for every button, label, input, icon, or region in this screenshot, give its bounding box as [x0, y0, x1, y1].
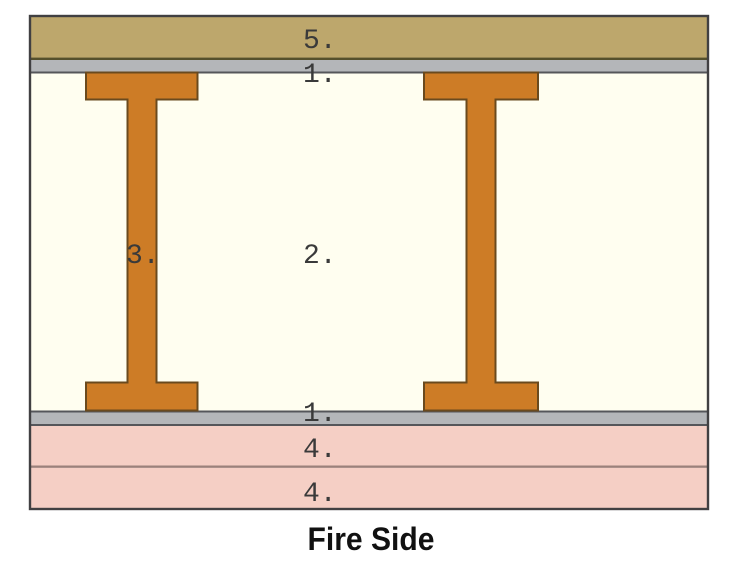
svg-text:4.: 4. [303, 479, 337, 510]
svg-text:2.: 2. [303, 241, 337, 272]
svg-text:3.: 3. [126, 241, 160, 272]
svg-text:Fire Side: Fire Side [308, 521, 435, 557]
svg-text:1.: 1. [303, 60, 337, 91]
svg-text:1.: 1. [303, 399, 337, 430]
svg-text:5.: 5. [303, 26, 337, 57]
svg-text:4.: 4. [303, 435, 337, 466]
